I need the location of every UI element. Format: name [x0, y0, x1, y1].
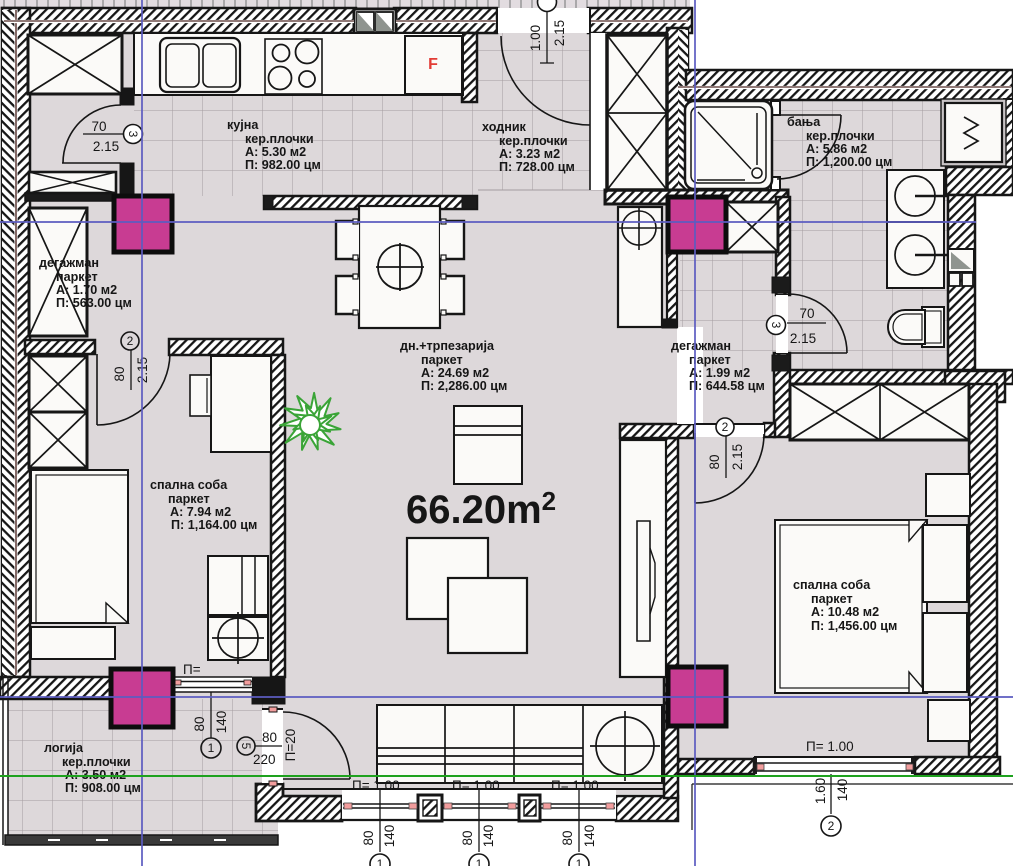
svg-text:140: 140 [481, 825, 496, 848]
svg-text:140: 140 [835, 779, 850, 802]
svg-text:П: 728.00 цм: П: 728.00 цм [499, 160, 575, 174]
svg-text:логија: логија [44, 741, 84, 755]
svg-text:80: 80 [560, 830, 575, 845]
svg-text:паркет: паркет [56, 270, 98, 284]
svg-text:80: 80 [192, 716, 207, 731]
svg-text:2.15: 2.15 [93, 139, 119, 154]
svg-text:3: 3 [126, 131, 140, 138]
svg-text:дн.+трпезарија: дн.+трпезарија [400, 339, 495, 353]
svg-text:кер.плочки: кер.плочки [499, 134, 568, 148]
svg-text:П: 2,286.00 цм: П: 2,286.00 цм [421, 379, 507, 393]
svg-text:П= 1.00: П= 1.00 [452, 778, 500, 793]
svg-text:3: 3 [769, 322, 783, 329]
svg-text:бања: бања [787, 115, 821, 129]
svg-text:66.20m2: 66.20m2 [406, 486, 556, 532]
svg-text:П: 644.58 цм: П: 644.58 цм [689, 379, 765, 393]
svg-text:паркет: паркет [811, 592, 853, 606]
svg-text:П=20: П=20 [283, 729, 298, 762]
svg-text:1: 1 [208, 741, 215, 755]
svg-text:А: 5.30 м2: А: 5.30 м2 [245, 145, 306, 159]
svg-text:А: 7.94 м2: А: 7.94 м2 [170, 505, 231, 519]
svg-text:П= 1.00: П= 1.00 [352, 778, 400, 793]
svg-text:кер.плочки: кер.плочки [806, 129, 875, 143]
svg-text:кер.плочки: кер.плочки [245, 132, 314, 146]
svg-text:2.15: 2.15 [552, 20, 567, 46]
svg-text:П=: П= [183, 662, 201, 677]
svg-text:1.60: 1.60 [813, 778, 828, 804]
svg-text:А: 24.69 м2: А: 24.69 м2 [421, 366, 489, 380]
svg-text:80: 80 [112, 366, 127, 381]
svg-text:А: 5.86 м2: А: 5.86 м2 [806, 142, 867, 156]
svg-text:70: 70 [799, 306, 814, 321]
svg-text:F: F [428, 56, 438, 73]
svg-text:кујна: кујна [227, 118, 259, 132]
svg-text:спална соба: спална соба [150, 478, 228, 492]
svg-text:1: 1 [377, 857, 384, 866]
svg-text:П: 908.00 цм: П: 908.00 цм [65, 781, 141, 795]
svg-text:П= 1.00: П= 1.00 [551, 778, 599, 793]
svg-text:1.00: 1.00 [528, 25, 543, 51]
svg-text:2.15: 2.15 [790, 331, 816, 346]
svg-text:1: 1 [576, 857, 583, 866]
svg-text:140: 140 [214, 711, 229, 734]
svg-text:5: 5 [239, 743, 253, 750]
svg-text:спална соба: спална соба [793, 578, 871, 592]
svg-text:70: 70 [91, 119, 106, 134]
svg-text:80: 80 [361, 830, 376, 845]
svg-text:80: 80 [707, 454, 722, 469]
svg-text:220: 220 [253, 752, 276, 767]
svg-text:А: 3.23 м2: А: 3.23 м2 [499, 147, 560, 161]
svg-text:П= 1.00: П= 1.00 [806, 739, 854, 754]
svg-text:П: 982.00 цм: П: 982.00 цм [245, 158, 321, 172]
svg-text:дегажман: дегажман [39, 256, 99, 270]
svg-text:2: 2 [828, 819, 835, 833]
svg-text:2: 2 [722, 420, 729, 434]
svg-text:П: 1,200.00 цм: П: 1,200.00 цм [806, 155, 892, 169]
svg-text:140: 140 [382, 825, 397, 848]
svg-text:2.15: 2.15 [730, 444, 745, 470]
svg-text:140: 140 [582, 825, 597, 848]
svg-text:80: 80 [262, 730, 277, 745]
svg-text:А: 10.48 м2: А: 10.48 м2 [811, 605, 879, 619]
svg-text:ходник: ходник [482, 120, 527, 134]
svg-text:П: 1,456.00 цм: П: 1,456.00 цм [811, 619, 897, 633]
svg-text:1: 1 [476, 857, 483, 866]
svg-text:паркет: паркет [421, 353, 463, 367]
svg-text:дегажман: дегажман [671, 339, 731, 353]
svg-text:паркет: паркет [168, 492, 210, 506]
svg-text:2: 2 [127, 334, 134, 348]
svg-text:80: 80 [460, 830, 475, 845]
svg-text:П: 563.00 цм: П: 563.00 цм [56, 296, 132, 310]
svg-text:П: 1,164.00 цм: П: 1,164.00 цм [171, 518, 257, 532]
svg-text:А: 1.99 м2: А: 1.99 м2 [689, 366, 750, 380]
svg-text:кер.плочки: кер.плочки [62, 755, 131, 769]
svg-text:А: 1.70 м2: А: 1.70 м2 [56, 283, 117, 297]
